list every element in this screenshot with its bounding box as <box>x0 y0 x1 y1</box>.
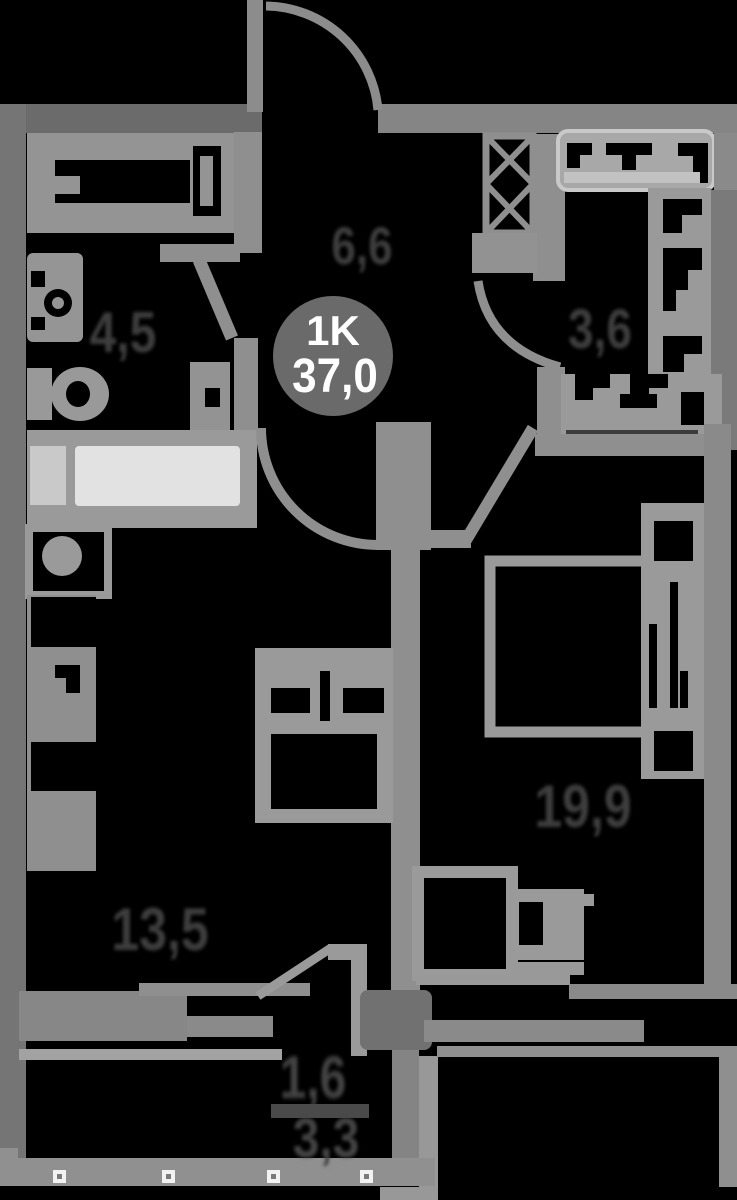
svg-text:1K: 1K <box>306 307 360 354</box>
svg-text:3,6: 3,6 <box>568 298 632 360</box>
svg-text:1,6: 1,6 <box>280 1044 347 1111</box>
svg-text:19,9: 19,9 <box>534 773 631 840</box>
svg-text:3,3: 3,3 <box>293 1107 360 1169</box>
svg-text:4,5: 4,5 <box>90 301 157 365</box>
svg-text:6,6: 6,6 <box>331 217 392 276</box>
svg-text:37,0: 37,0 <box>292 348 378 402</box>
svg-text:13,5: 13,5 <box>111 896 208 963</box>
